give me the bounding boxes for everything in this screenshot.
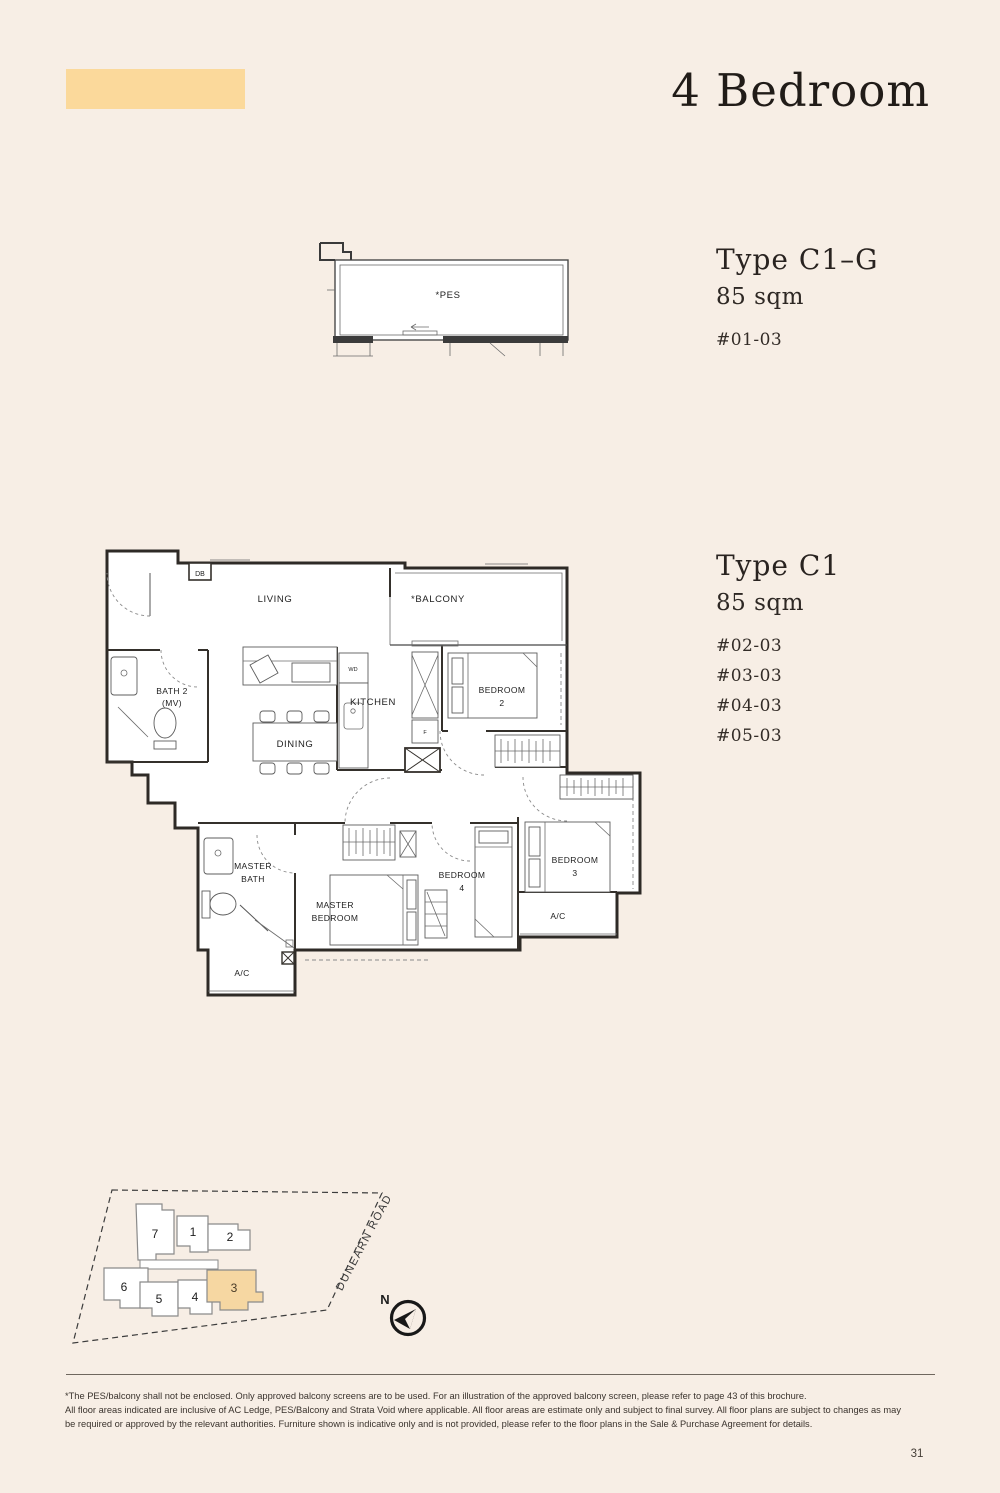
pes-wall-segment-left: [333, 336, 373, 343]
toilet-bowl: [154, 708, 176, 738]
bedroom3-label2: 3: [572, 868, 577, 878]
stack-number: #03-03: [716, 661, 976, 691]
master-bedroom-label2: BEDROOM: [312, 913, 359, 923]
disclaimer-line: be required or approved by the relevant …: [65, 1417, 955, 1431]
accent-swatch: [66, 69, 245, 109]
master-bath-label: MASTER: [234, 861, 272, 871]
building-2-label: 2: [227, 1230, 234, 1244]
podium-bar: [140, 1260, 218, 1269]
master-bedroom-label: MASTER: [316, 900, 354, 910]
dining-label: DINING: [277, 739, 314, 750]
unit-c1g-type: Type C1–G: [716, 246, 976, 274]
building-5-label: 5: [156, 1292, 163, 1306]
master-wardrobe: [343, 825, 395, 860]
unit-c1g-area: 85 sqm: [716, 286, 976, 309]
road-label: DUNEARN ROAD: [334, 1192, 395, 1292]
bedroom2-label: BEDROOM: [479, 685, 526, 695]
building-1-label: 1: [190, 1225, 197, 1239]
pes-step-wall: [320, 243, 351, 260]
toilet-bowl: [210, 893, 236, 915]
db-label: DB: [195, 571, 205, 578]
dining-chair: [260, 711, 275, 722]
bedroom4-bed: [475, 827, 512, 937]
building-3-label: 3: [231, 1281, 238, 1295]
bedroom2-label2: 2: [499, 698, 504, 708]
pillow: [407, 880, 416, 909]
bedroom4-label: BEDROOM: [439, 870, 486, 880]
disclaimer: *The PES/balcony shall not be enclosed. …: [65, 1389, 955, 1431]
disclaimer-line: All floor areas indicated are inclusive …: [65, 1403, 955, 1417]
pillow: [452, 687, 463, 713]
unit-c1-block: Type C1 85 sqm #02-03 #03-03 #04-03 #05-…: [716, 552, 976, 751]
pillow: [529, 859, 540, 887]
bedroom3-label: BEDROOM: [552, 855, 599, 865]
pes-wall-segment-right: [443, 336, 568, 343]
unit-c1-stacks: #02-03 #03-03 #04-03 #05-03: [716, 631, 976, 751]
dining-chair: [314, 763, 329, 774]
bedroom4-label2: 4: [459, 883, 464, 893]
pes-wall-stubs: [333, 343, 563, 356]
pillow: [407, 912, 416, 940]
pes-label: *PES: [435, 290, 460, 301]
page-title: 4 Bedroom: [430, 66, 930, 116]
stack-number: #04-03: [716, 691, 976, 721]
pillow: [529, 827, 540, 856]
pillow: [452, 658, 463, 684]
building-7-label: 7: [152, 1227, 159, 1241]
site-plan: 7 1 2 6 5 4 3 DUNEARN ROAD N: [60, 1180, 460, 1360]
ac-right-label: A/C: [550, 911, 565, 921]
footer-divider: [66, 1374, 935, 1375]
dining-chair: [314, 711, 329, 722]
pillow: [479, 831, 508, 843]
dining-chair: [287, 711, 302, 722]
brochure-page: 4 Bedroom *PES Type C1–G 85 sqm #01-03: [0, 0, 1000, 1493]
toilet-tank: [154, 741, 176, 749]
unit-c1g-block: Type C1–G 85 sqm #01-03: [716, 246, 976, 355]
unit-c1-type: Type C1: [716, 552, 976, 580]
stack-number: #02-03: [716, 631, 976, 661]
dining-chair: [287, 763, 302, 774]
ac-left-label: A/C: [234, 968, 249, 978]
balcony-label: *BALCONY: [411, 594, 465, 605]
master-bed: [330, 875, 418, 945]
disclaimer-line: *The PES/balcony shall not be enclosed. …: [65, 1389, 955, 1403]
main-floor-plan: DB: [90, 535, 670, 1015]
pes-floor-plan: *PES: [315, 240, 580, 370]
site-boundary: [73, 1190, 382, 1343]
kitchen-label: KITCHEN: [350, 697, 396, 708]
bath2-label: BATH 2: [156, 686, 188, 696]
kitchen-counter: [339, 683, 368, 768]
building-4-label: 4: [192, 1290, 199, 1304]
building-6-label: 6: [121, 1280, 128, 1294]
master-bath-label2: BATH: [241, 874, 265, 884]
unit-c1g-stacks: #01-03: [716, 325, 976, 355]
living-label: LIVING: [258, 594, 293, 605]
unit-c1-area: 85 sqm: [716, 592, 976, 615]
stack-number: #05-03: [716, 721, 976, 751]
wd-label: WD: [348, 667, 357, 673]
page-number: 31: [900, 1448, 934, 1460]
pes-step-wall2: [320, 243, 335, 260]
bath2-label2: (MV): [162, 698, 182, 708]
stack-number: #01-03: [716, 325, 976, 355]
sofa-chaise: [292, 663, 330, 682]
toilet-tank: [202, 891, 210, 918]
north-label: N: [380, 1292, 389, 1307]
dining-chair: [260, 763, 275, 774]
